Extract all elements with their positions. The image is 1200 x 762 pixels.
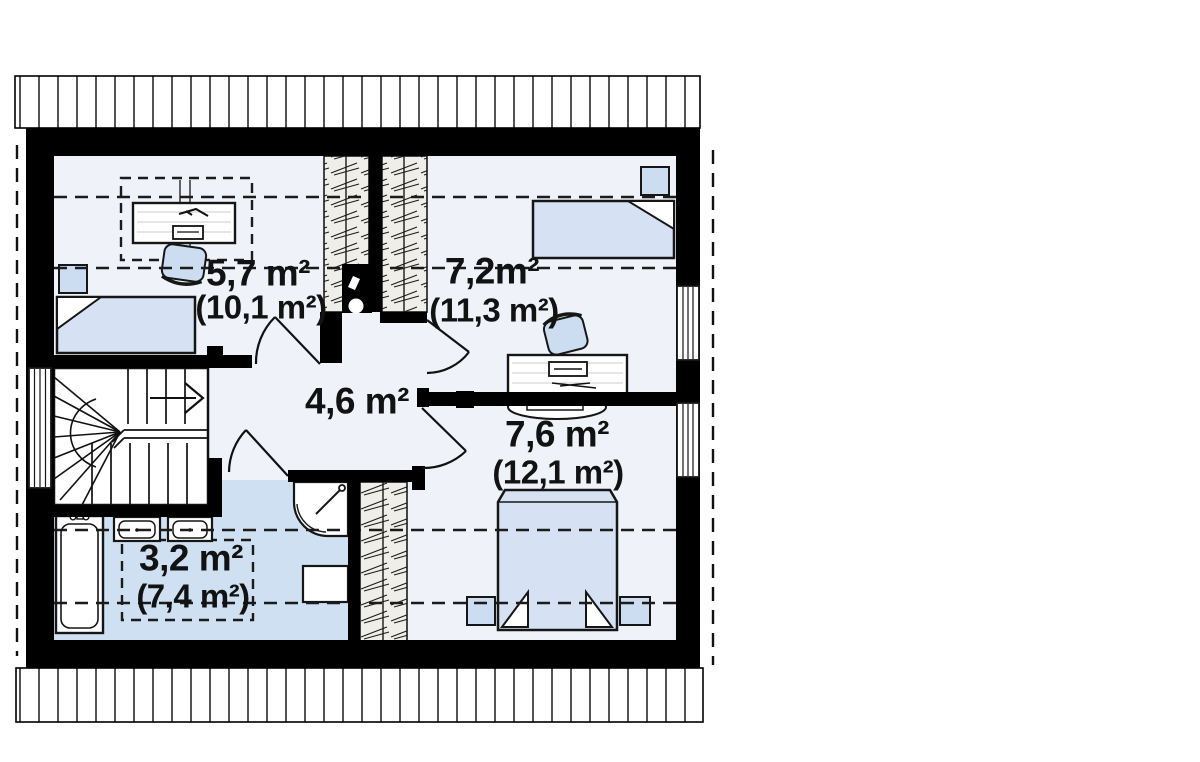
bathtub <box>56 509 103 633</box>
nightstand <box>467 597 495 625</box>
label-bedroom-right-total: (11,3 m²) <box>429 294 558 327</box>
wall-south <box>26 640 700 668</box>
bed-double <box>498 490 617 630</box>
desk-chair-left <box>160 243 207 286</box>
eave-band-bottom <box>16 668 703 722</box>
floor-plan: 5,7 m² (10,1 m²) 7,2m² (11,3 m²) 4,6 m² … <box>0 0 1200 762</box>
floor-plan-drawing <box>0 0 1200 762</box>
desk-right <box>508 355 627 394</box>
label-bedroom-master-total: (12,1 m²) <box>492 456 623 489</box>
window-west <box>29 368 51 488</box>
wardrobe-bottom <box>360 482 407 641</box>
wall-north <box>26 128 700 156</box>
washing-machine <box>303 566 348 602</box>
bed-single-left <box>57 297 195 353</box>
label-bathroom-area: 3,2 m² <box>139 540 243 577</box>
desk-left <box>133 203 235 243</box>
wall-east <box>676 128 700 668</box>
label-bedroom-master-area: 7,6 m² <box>505 416 609 453</box>
staircase <box>54 368 208 505</box>
label-bedroom-left-area: 5,7 m² <box>206 255 310 292</box>
eave-band-top <box>15 76 700 128</box>
nightstand <box>620 597 650 625</box>
label-bathroom-total: (7,4 m²) <box>136 580 249 613</box>
nightstand <box>641 167 669 195</box>
window-east-upper <box>677 286 699 360</box>
wardrobe-right <box>382 156 427 312</box>
label-hall-area: 4,6 m² <box>305 383 409 420</box>
window-east-lower <box>677 403 699 477</box>
label-bedroom-right-area: 7,2m² <box>445 253 539 290</box>
nightstand <box>59 265 87 293</box>
label-bedroom-left-total: (10,1 m²) <box>195 291 326 324</box>
bed-single-right <box>533 201 674 258</box>
